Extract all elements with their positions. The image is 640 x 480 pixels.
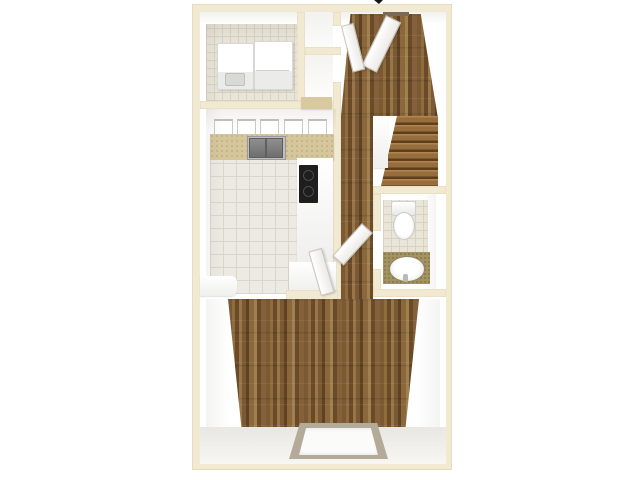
bathroom-bottom-wall <box>373 289 446 297</box>
window-pane <box>299 428 378 455</box>
living-left-wall-shade <box>206 299 230 427</box>
hall-left-wall-upper <box>333 12 341 26</box>
washer-door <box>225 73 245 86</box>
sink-basin-left <box>249 138 266 158</box>
living-room-floor <box>228 299 419 427</box>
closet-bottom-wall <box>305 47 341 55</box>
laundry-closet-divider-wall <box>297 12 305 101</box>
kitchen-floor <box>210 160 297 294</box>
closet-floor <box>305 14 333 47</box>
vanity-faucet <box>403 274 408 282</box>
hall-floor <box>341 116 373 301</box>
nook-threshold <box>301 97 332 109</box>
cooktop-burner-front <box>303 170 314 181</box>
bathroom-left-wall-upper <box>373 194 381 231</box>
sink-basin-right <box>266 138 283 158</box>
floorplan <box>192 4 452 470</box>
screenshot-canvas: { "scene": { "type": "3d-top-down-floor-… <box>0 0 640 480</box>
kitchen-left-wall-shade <box>206 109 222 294</box>
dryer-seam <box>256 70 289 71</box>
staircase <box>381 116 438 186</box>
stairs-bottom-wall <box>373 186 446 194</box>
toilet-bowl <box>393 212 415 240</box>
floorplan-interior <box>200 12 446 464</box>
nook-floor <box>305 55 333 98</box>
cooktop-burner-rear <box>303 186 314 197</box>
living-right-wall-shade <box>416 299 440 427</box>
stair-stringer-wall <box>373 116 388 168</box>
living-left-wall-stub <box>200 276 237 296</box>
dryer <box>254 41 293 90</box>
